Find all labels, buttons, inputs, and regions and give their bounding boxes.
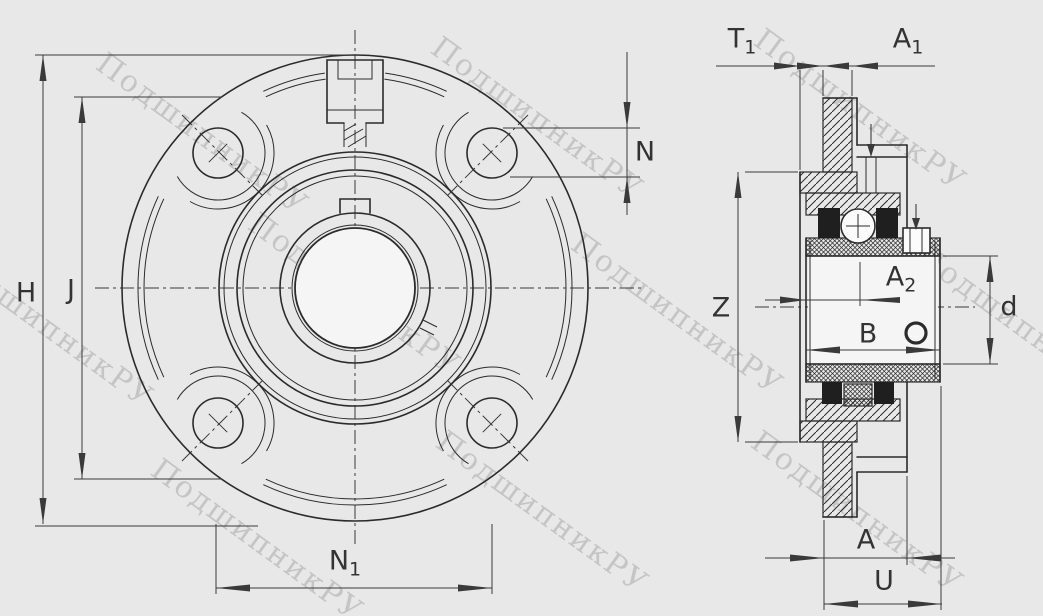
dim-label-B: B [859, 321, 878, 348]
technical-drawing-canvas: ПодшипникРУ ПодшипникРУ ПодшипникРУ Подш… [0, 0, 1043, 616]
inner-ring-bottom-band [806, 364, 940, 382]
lower-setscrew [844, 384, 872, 406]
grease-passage [866, 124, 876, 193]
dim-label-A2: A2 [886, 264, 917, 291]
shaft-bore [295, 228, 415, 348]
dim-label-A1: A1 [893, 26, 924, 53]
dim-U [824, 601, 942, 608]
front-view [95, 30, 645, 545]
dim-label-N: N [635, 139, 655, 166]
dim-label-J: J [67, 277, 75, 304]
flange-top-lug [823, 98, 852, 172]
line-art [0, 0, 1043, 616]
dim-label-A: A [857, 527, 875, 554]
dim-d [943, 256, 998, 364]
side-view [755, 98, 975, 517]
seal-right [876, 208, 898, 238]
dim-label-N1: N1 [329, 548, 361, 575]
housing-bottom-band [800, 421, 857, 442]
dim-label-d: d [1000, 294, 1017, 321]
dim-label-U: U [874, 568, 894, 595]
dim-label-T1: T1 [728, 26, 757, 53]
seal-left-bottom [822, 382, 842, 404]
dim-N [503, 52, 640, 215]
seal-left [818, 208, 840, 238]
dim-label-H: H [16, 280, 36, 307]
seal-right-bottom [874, 382, 894, 404]
flange-bottom-lug [823, 442, 852, 517]
housing-top-band [800, 172, 857, 193]
grease-leader-arrow [867, 144, 875, 157]
dim-label-Z: Z [712, 295, 731, 322]
